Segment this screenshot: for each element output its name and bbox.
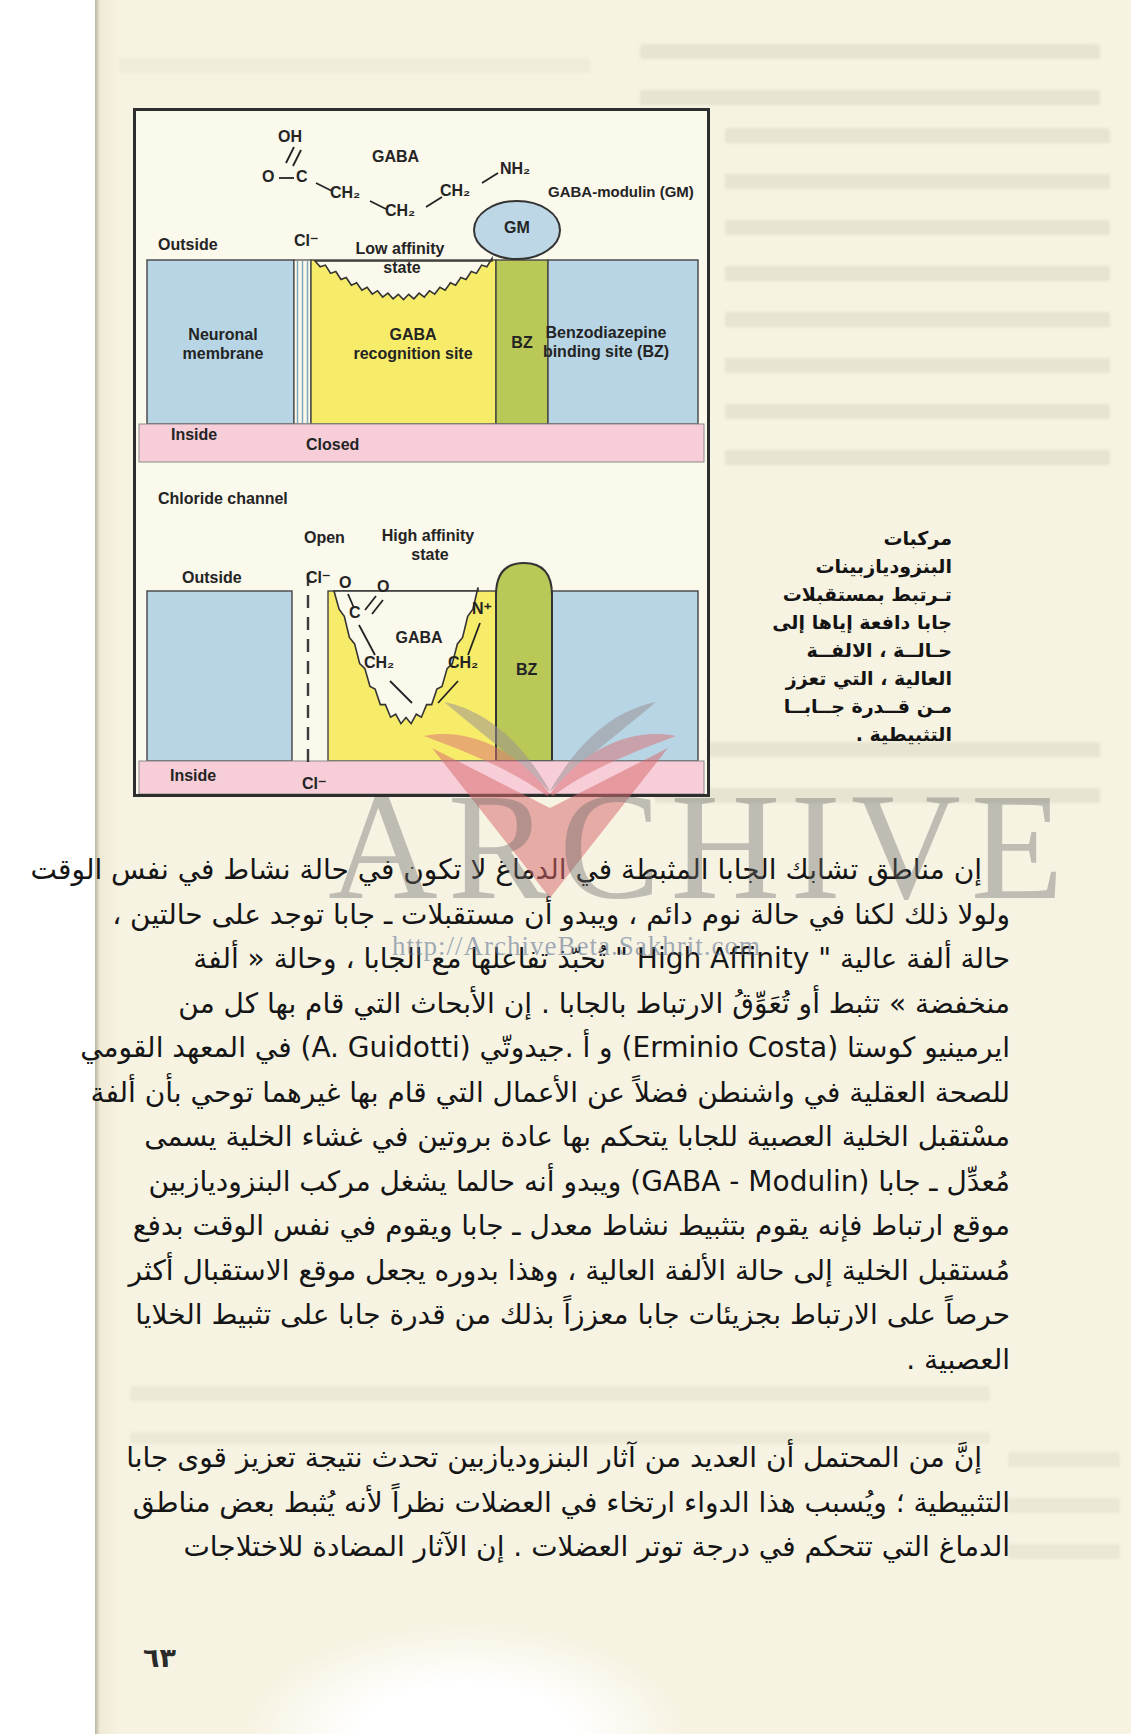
benzodiazepine-site-label: Benzodiazepine <box>546 325 667 342</box>
bz-label-2: BZ <box>516 662 537 679</box>
caption-line: التثبيطية . <box>700 720 952 748</box>
o-label: O <box>262 169 274 186</box>
scan-light-artifact <box>250 1628 680 1734</box>
neuronal-membrane-right-1 <box>548 260 698 424</box>
caption-line: تـرتبط بمستقبلات <box>700 580 952 608</box>
gaba-receptor-figure: OH GABA NH₂ O C CH₂ CH₂ CH₂ GABA-modulin… <box>133 108 710 797</box>
figure-caption: مركبات البنزوديازبينات تـرتبط بمستقبلات … <box>700 524 952 748</box>
outside-label-1: Outside <box>158 237 218 254</box>
closed-label: Closed <box>306 437 359 454</box>
low-affinity-label: Low affinity <box>356 241 445 258</box>
neuronal-membrane-label: membrane <box>183 346 264 363</box>
benzodiazepine-site-label: binding site (BZ) <box>543 344 669 361</box>
inside-label-1: Inside <box>171 427 217 444</box>
gaba-recognition-label: recognition site <box>353 346 472 363</box>
chloride-ion-label-2: Cl⁻ <box>306 570 330 587</box>
o-label: O <box>339 575 351 592</box>
caption-line: حـالــة ، الالفــة <box>700 636 952 664</box>
chloride-ion-label-3: Cl⁻ <box>302 776 326 793</box>
low-affinity-state-label: state <box>383 260 420 277</box>
figure-shapes <box>136 111 707 794</box>
high-affinity-label: High affinity <box>382 528 474 545</box>
neuronal-membrane-label: Neuronal <box>188 327 257 344</box>
scanned-page: OH GABA NH₂ O C CH₂ CH₂ CH₂ GABA-modulin… <box>0 0 1131 1734</box>
high-affinity-state-label: state <box>411 547 448 564</box>
caption-line: مـن قــدرة جــابــا <box>700 692 952 720</box>
caption-line: البنزوديازبينات <box>700 552 952 580</box>
ch2-label: CH₂ <box>330 185 360 202</box>
chloride-channel-label: Chloride channel <box>158 491 288 508</box>
text-line: ولولا ذلك لكنا في حالة نوم دائم ، ويبدو … <box>100 893 1010 938</box>
neuronal-membrane-right-2 <box>552 591 698 761</box>
text-line: ايرمينيو كوستا (Erminio Costa) و أ .جيدو… <box>100 1026 1010 1071</box>
bleed-through-text <box>640 44 1100 110</box>
text-line: موقع ارتباط فإنه يقوم بتثبيط نشاط معدل ـ… <box>100 1204 1010 1249</box>
nh2-label: NH₂ <box>500 161 530 178</box>
text-line: إن مناطق تشابك الجابا المثبطة في الدماغ … <box>100 848 1010 893</box>
n-plus-label: N⁺ <box>472 601 492 618</box>
caption-line: جابا دافعة إياها إلى <box>700 608 952 636</box>
text-line: مُستقبل الخلية إلى حالة الألفة العالية ،… <box>100 1249 1010 1294</box>
inside-strip-1 <box>139 424 704 462</box>
ch2-label: CH₂ <box>364 655 394 672</box>
inside-label-2: Inside <box>170 768 216 785</box>
ch2-label: CH₂ <box>440 183 470 200</box>
text-line: الدماغ التي تتحكم في درجة توتر العضلات .… <box>100 1525 1010 1570</box>
bleed-through-text <box>1008 1452 1120 1570</box>
ch2-label: CH₂ <box>385 203 415 220</box>
text-line: مسْتقبل الخلية العصبية للجابا يتحكم بها … <box>100 1115 1010 1160</box>
outside-label-2: Outside <box>182 570 242 587</box>
text-line: حالة ألفة عالية " High Affinity " تُحبّذ… <box>100 937 1010 982</box>
text-line: منخفضة » تثبط أو تُعَوِّقُ الارتباط بالج… <box>100 982 1010 1027</box>
gm-label: GM <box>504 220 530 237</box>
gaba-label-2: GABA <box>395 630 442 647</box>
body-paragraph-1: إن مناطق تشابك الجابا المثبطة في الدماغ … <box>100 848 1010 1382</box>
body-paragraph-2: إنَّ من المحتمل أن العديد من آثار البنزو… <box>100 1436 1010 1570</box>
bleed-through-text <box>725 128 1110 470</box>
open-label: Open <box>304 530 345 547</box>
bleed-through-text <box>120 58 590 98</box>
gaba-modulin-label: GABA-modulin (GM) <box>548 184 694 200</box>
caption-line: العالية ، التي تعزز <box>700 664 952 692</box>
neuronal-membrane-left-2 <box>147 591 292 761</box>
text-line: العصبية . <box>100 1338 1010 1383</box>
ch2-label: CH₂ <box>448 655 478 672</box>
bleed-through-text <box>655 742 1100 820</box>
c-label: C <box>296 169 308 186</box>
bz-label-1: BZ <box>511 335 532 352</box>
gaba-recognition-label: GABA <box>389 327 436 344</box>
o-label: O <box>377 579 389 596</box>
gaba-title-label: GABA <box>372 149 419 166</box>
chloride-ion-label-1: Cl⁻ <box>294 233 318 250</box>
text-line: للصحة العقلية في واشنطن فضلاً عن الأعمال… <box>100 1071 1010 1116</box>
text-line: مُعدِّل ـ جابا (GABA - Modulin) ويبدو أن… <box>100 1160 1010 1205</box>
page-number: ٦٣ <box>143 1642 176 1673</box>
c-label: C <box>349 605 361 622</box>
caption-line: مركبات <box>700 524 952 552</box>
text-line: التثبيطية ؛ ويُسبب هذا الدواء ارتخاء في … <box>100 1481 1010 1526</box>
text-line: إنَّ من المحتمل أن العديد من آثار البنزو… <box>100 1436 1010 1481</box>
text-line: حرصاً على الارتباط بجزيئات جابا معززاً ب… <box>100 1293 1010 1338</box>
oh-label: OH <box>278 129 302 146</box>
inside-strip-2 <box>139 761 704 794</box>
